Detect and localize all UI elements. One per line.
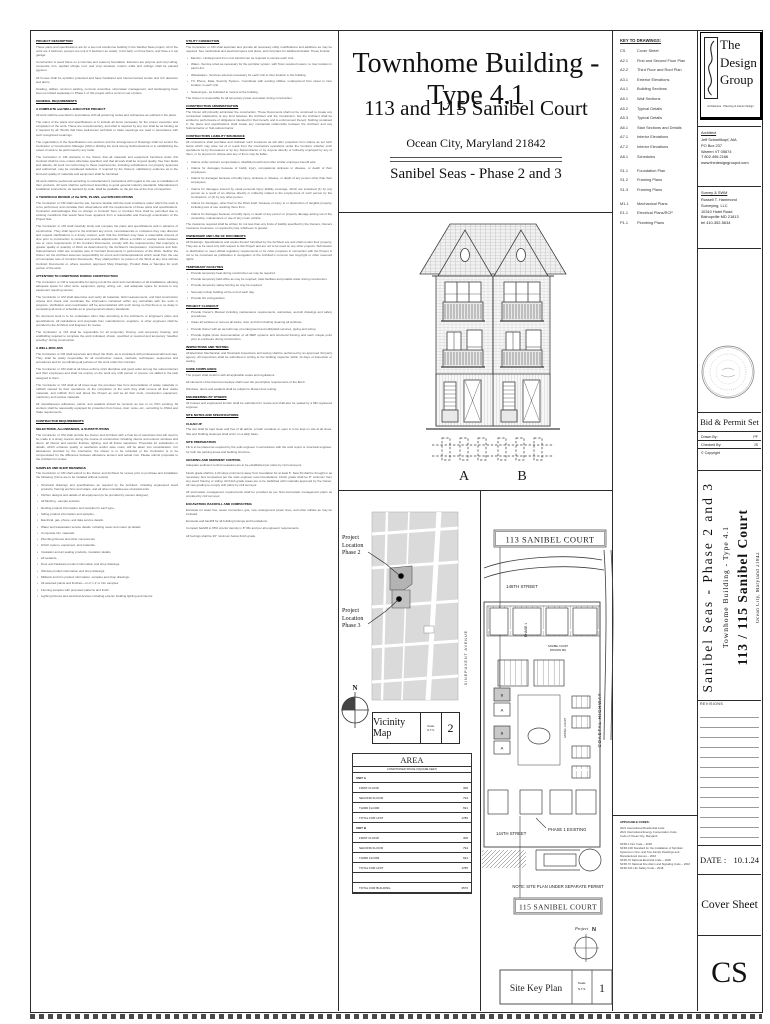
- spec-paragraph: The Contractor or CM shall at all times …: [36, 383, 178, 400]
- total-area: 3570: [461, 886, 468, 890]
- sinepuxent-avenue-label: SINEPUXENT AVENUE: [464, 630, 468, 685]
- spec-paragraph: Excavate and backfill for all building f…: [186, 519, 332, 523]
- vicinity-map-number: 2: [442, 713, 459, 743]
- spec-paragraph: The Contractor or CM shall provide the O…: [36, 433, 178, 462]
- spec-paragraph: All trusses and engineered lumber shall …: [186, 401, 332, 409]
- spec-bullet: Composite trim materials.: [36, 531, 178, 535]
- drawing-title: Mechanical Plans: [637, 201, 668, 206]
- strip-phase: Sanibel Seas - Phase 2 and 3: [700, 482, 716, 692]
- floor-area: 794: [463, 846, 468, 850]
- drawing-code: A5.3: [620, 115, 637, 120]
- design-group-name: TheDesignGroup: [720, 36, 757, 89]
- drawing-index-row: A3.1Exterior Elevations: [620, 77, 694, 82]
- section-heading: SITE PREPARATION: [186, 440, 332, 444]
- drawing-title: Wall Sections: [637, 96, 660, 101]
- survey-info: Survey & SWM Russell T. HammondSurveying…: [701, 190, 759, 226]
- drawing-code: CS: [620, 48, 637, 53]
- spec-paragraph: Construction is wood frame on a concrete…: [36, 60, 178, 72]
- sheet-code-box: CS: [698, 935, 761, 1011]
- spec-bullet: Provide temporary safety fencing as may …: [186, 283, 332, 287]
- unit-b-label: B: [517, 469, 526, 484]
- section-heading: CONSTRUCTION ADMINISTRATION: [186, 104, 332, 108]
- drawing-code: S1.1: [620, 168, 637, 173]
- unit-block-letter: A: [501, 746, 504, 751]
- sheet-name-box: Cover Sheet: [698, 875, 761, 936]
- drawing-code: S1.3: [620, 187, 637, 192]
- spec-bullet: Door and hardware product information an…: [36, 562, 178, 566]
- site-plan-note: NOTE: SITE PLAN UNDER SEPARATE PERMIT: [512, 884, 604, 889]
- spec-paragraph: Adequate sediment control measures are t…: [186, 463, 332, 467]
- strip-address: 113 / 115 Sanibel Court: [735, 509, 751, 666]
- label-146th-street: 146TH STREET: [506, 584, 538, 589]
- code-line: NFPA 13D Standard for the Installation o…: [620, 846, 694, 858]
- revision-line: [700, 808, 759, 818]
- spec-paragraph: The Contractor or CM warrants to the Own…: [36, 155, 178, 176]
- area-table-group: UNIT A: [353, 773, 471, 783]
- site-key-plan-scale-label: Scale:: [578, 981, 587, 985]
- spec-paragraph: The site shall be kept clean and free of…: [186, 427, 332, 435]
- floor-label: THIRD FLOOR: [356, 856, 379, 860]
- drawing-title: Schedules: [637, 154, 655, 159]
- site-key-plan-scale: N.T.S.: [578, 987, 586, 991]
- divider-specs-center: [338, 30, 339, 1011]
- section-heading: CODE COMPLIANCE: [186, 367, 332, 371]
- spec-bullet: Water and wastewater service details, in…: [36, 525, 178, 529]
- spec-bullet: Provide temporary field office as may be…: [186, 277, 332, 281]
- spec-column-2: UTILITY CONNECTIONThe Contractor or CM s…: [186, 35, 332, 541]
- rule: [698, 186, 761, 187]
- spec-bullet: Kitchen designs and details of all equip…: [36, 493, 178, 497]
- floor-area: 1785: [461, 866, 468, 870]
- label-phase1-existing: PHASE 1 EXISTING: [548, 827, 586, 832]
- spec-bullet: Claims for damages, other than to the Wo…: [186, 201, 332, 209]
- drawing-title: Typical Details: [637, 106, 662, 111]
- drawing-index-row: E1.1Electrical Plans/RCP: [620, 210, 694, 215]
- rule: [698, 248, 761, 249]
- section-heading: GENERAL REQUIREMENTS: [36, 99, 178, 103]
- spec-paragraph: Fill is to be placed as required by the …: [186, 445, 332, 453]
- rule: [698, 470, 761, 471]
- drawing-index-row: S1.2Framing Plans: [620, 177, 694, 182]
- drawing-code: A5.1: [620, 96, 637, 101]
- revision-line: [700, 818, 759, 828]
- area-table-group: UNIT B: [353, 823, 471, 833]
- vicinity-map-title: Vicinity Map: [373, 713, 421, 743]
- floor-label: SECOND FLOOR: [356, 846, 383, 850]
- revision-line: [700, 728, 759, 738]
- design-group-logo-icon: [704, 37, 718, 99]
- section-heading: PROJECT DESCRIPTION: [36, 39, 178, 43]
- vicinity-map-titlebar: Vicinity Map Scale:N.T.S. 2: [372, 712, 460, 744]
- rule-under-title: [338, 212, 612, 213]
- spec-bullet: Provide temporary heat during constructi…: [186, 271, 332, 275]
- spec-bullet: Clean all surfaces to remove all stains,…: [186, 320, 332, 324]
- drawing-code: A2.1: [620, 58, 637, 63]
- spec-bullet: All selected paints and finishes—on 2' x…: [36, 581, 178, 585]
- spec-paragraph: The Owner is responsible for all tempora…: [186, 96, 332, 100]
- spec-paragraph: All Drawings, Specifications and copies …: [186, 240, 332, 261]
- revision-line: [700, 828, 759, 838]
- spec-bullet: Claims for damages because of bodily inj…: [186, 176, 332, 184]
- design-group-tagline: Architecture · Planning & Interior Desig…: [703, 105, 758, 108]
- drawing-code: A7.1: [620, 134, 637, 139]
- date-value: 10.1.24: [734, 855, 760, 865]
- revision-line: [700, 718, 759, 728]
- section-heading: CLEAN UP: [186, 422, 332, 426]
- drawing-index-row: P1.1Plumbing Plans: [620, 220, 694, 225]
- project-phase: Sanibel Seas - Phase 2 and 3: [345, 166, 607, 183]
- area-table-row: FIRST FLOOR300: [353, 783, 471, 793]
- spec-bullet: Securely lockup building at the end of e…: [186, 290, 332, 294]
- section-heading: A COMPLETE and WELL-EXECUTED PROJECT: [36, 107, 178, 111]
- spec-paragraph: The project shall conform with all appli…: [186, 373, 332, 377]
- spec-paragraph: The Contractor or CM shall submit to the…: [36, 471, 178, 479]
- area-table: AREACONDITIONED SPACE (SQUARE FEET)UNIT …: [352, 753, 472, 894]
- spec-paragraph: The Owner will primarily administer the …: [186, 110, 332, 131]
- area-table-row: THIRD FLOOR691: [353, 803, 471, 813]
- area-table-title: AREA: [353, 754, 471, 767]
- revision-line: [700, 798, 759, 808]
- phase2-location-label: ProjectLocationPhase 2: [342, 535, 363, 558]
- site-key-plan: 113 SANIBEL COURT 146TH STREET PHASE 1 S…: [480, 490, 614, 1011]
- spec-paragraph: All footings shall be 30" minimum below …: [186, 534, 332, 538]
- section-heading: PROJECT CLOSEOUT: [186, 304, 332, 308]
- label-sanibel-court-small: SANIBEL COURT: [564, 718, 567, 738]
- title-double-rule: [390, 157, 562, 162]
- project-city: Ocean City, Maryland 21842: [345, 136, 607, 151]
- area-table-spacer: [353, 873, 471, 883]
- drawing-index-row: A5.2Typical Details: [620, 106, 694, 111]
- section-heading: SITE NOTES AND SPECIFICATIONS: [186, 413, 332, 417]
- spec-paragraph: Grading, utilities, common parking, comm…: [36, 87, 178, 95]
- section-heading: SAMPLES AND SHOP DRAWINGS: [36, 466, 178, 470]
- spec-paragraph: Finish grade shall be 1:20 slope (minimu…: [186, 471, 332, 488]
- area-table-row: TOTAL FOR UNIT1785: [353, 863, 471, 873]
- area-table-row: TOTAL FOR UNIT1785: [353, 813, 471, 823]
- spec-paragraph: The Contractor or CM shall at all times …: [36, 367, 178, 379]
- spec-paragraph: These plans and specifications are for a…: [36, 45, 178, 57]
- section-heading: CONTRACTOR REQUIREMENTS: [36, 419, 178, 423]
- revision-line: [700, 778, 759, 788]
- drawing-code: A8.1: [620, 154, 637, 159]
- spec-paragraph: All homes shall be sprinkler protected a…: [36, 76, 178, 84]
- spec-paragraph: All elements of the thermal envelope sha…: [186, 380, 332, 384]
- spec-bullet: Lighting fixtures and electrical devices…: [36, 594, 178, 598]
- spec-paragraph: All miscellaneous adhesives, paints, and…: [36, 402, 178, 414]
- spec-paragraph: All stormwater management requirements s…: [186, 490, 332, 498]
- label-144th-street: 144TH STREET: [496, 831, 527, 836]
- architect-info: Architect Jeff Schoellkopf, AIAPO Box 23…: [701, 130, 759, 166]
- checked-by-row: Checked By:JS: [698, 441, 761, 449]
- label-113-sanibel-court: 113 SANIBEL COURT: [505, 535, 594, 545]
- spec-bullet: Structural drawings and specifications a…: [36, 483, 178, 491]
- spec-paragraph: All work shall be performed according to…: [36, 179, 178, 191]
- spec-paragraph: The organization of the Specifications i…: [36, 140, 178, 152]
- drawing-code: A2.2: [620, 67, 637, 72]
- key-to-drawings-title: KEY TO DRAWINGS:: [620, 38, 694, 43]
- drawing-code: A6.1: [620, 125, 637, 130]
- spec-paragraph: The insurance required shall be written …: [186, 222, 332, 230]
- floor-label: TOTAL FOR UNIT: [356, 816, 383, 820]
- applicable-codes-title: APPLICABLE CODES:: [620, 820, 694, 824]
- section-heading: CONTRACTORS LIABILITY INSURANCE: [186, 134, 332, 138]
- label-sanibel-court-private-1: SANIBEL COURT: [548, 645, 568, 648]
- spec-column-1: PROJECT DESCRIPTIONThese plans and speci…: [36, 35, 178, 600]
- section-heading: ENGINEERING BY OTHERS: [186, 395, 332, 399]
- drawing-index-row: A5.3Typical Details: [620, 115, 694, 120]
- spec-bullet: Claims for damages insured by usual pers…: [186, 187, 332, 199]
- revision-line: [700, 768, 759, 778]
- strip-building-type: Townhome Building - Type 4.1: [721, 526, 730, 648]
- drawing-index-row: A7.1Interior Elevations: [620, 134, 694, 139]
- drawing-index-row: M1.1Mechanical Plans: [620, 201, 694, 206]
- drawing-index-row: A2.2Third Floor and Roof Plan: [620, 67, 694, 72]
- revisions-title: REVISIONS: [700, 702, 759, 706]
- spec-bullet: Provide Owner's Manual including mainten…: [186, 310, 332, 318]
- drawing-code: A4.1: [620, 86, 637, 91]
- section-heading: A WELL-RUN JOB: [36, 346, 178, 350]
- project-strip: Sanibel Seas - Phase 2 and 3 Townhome Bu…: [700, 476, 761, 698]
- spec-bullet: Provide Owner with an as-built map of un…: [186, 327, 332, 331]
- drawing-index-row: A8.1Schedules: [620, 154, 694, 159]
- unit-block-letter: B: [501, 693, 504, 698]
- spec-paragraph: The Contractor or CM shall carefully stu…: [36, 224, 178, 269]
- section-heading: INSPECTIONS AND TESTING: [186, 345, 332, 349]
- drawing-index-row: A5.1Wall Sections: [620, 96, 694, 101]
- building-elevation-drawing: A B: [398, 214, 588, 484]
- floor-area: 1785: [461, 816, 468, 820]
- drawing-title: Electrical Plans/RCP: [637, 210, 673, 215]
- section-heading: ATTENTION TO CONDITIONS DURING CONSTRUCT…: [36, 274, 178, 278]
- floor-area: 691: [463, 806, 468, 810]
- section-heading: A THOROUGH REVIEW of the SITE, PLANS, an…: [36, 195, 178, 199]
- cover-sheet-page: PROJECT DESCRIPTIONThese plans and speci…: [0, 0, 770, 1024]
- revision-line: [700, 738, 759, 748]
- revision-line: [700, 708, 759, 718]
- group-name: UNIT B: [356, 826, 366, 830]
- survey-line: tel 410-352-5634: [701, 220, 759, 226]
- drawing-title: Framing Plans: [637, 187, 662, 192]
- survey-heading: Survey & SWM: [701, 190, 759, 196]
- drawing-index-row: A4.1Building Sections: [620, 86, 694, 91]
- label-115-sanibel-court: 115 SANIBEL COURT: [519, 903, 597, 912]
- section-heading: OWNERSHIP AND USE OF DOCUMENTS: [186, 234, 332, 238]
- drawing-title: Cover Sheet: [637, 48, 659, 53]
- drawing-index-row: A2.1First and Second Floor Plan: [620, 58, 694, 63]
- floor-label: SECOND FLOOR: [356, 796, 383, 800]
- rule: [698, 126, 761, 127]
- section-heading: EXCAVATION, BACKFILL AND COMPACTING: [186, 502, 332, 506]
- drawing-code: E1.1: [620, 210, 637, 215]
- drawing-code: A7.2: [620, 144, 637, 149]
- drawing-title: Stair Sections and Details: [637, 125, 682, 130]
- floor-area: 300: [463, 786, 468, 790]
- issue-rows: Drawn By:PF Checked By:JS © Copyright: [698, 433, 761, 456]
- copyright-row: © Copyright: [698, 449, 761, 456]
- unit-block-letter: B: [501, 731, 504, 736]
- spec-bullet: Provide fire extinguishers.: [186, 296, 332, 300]
- spec-paragraph: The Contractor or CM shall be responsibl…: [36, 330, 178, 342]
- drawn-by-row: Drawn By:PF: [698, 433, 761, 441]
- phase3-location-label: ProjectLocationPhase 3: [342, 608, 363, 631]
- drawing-index-row: CSCover Sheet: [620, 48, 694, 53]
- spec-bullet: HVAC system, equipment, and materials.: [36, 543, 178, 547]
- spec-bullet: Claims under workers compensation, disab…: [186, 160, 332, 164]
- architect-heading: Architect: [701, 130, 759, 136]
- spec-bullet: All sealants.: [36, 556, 178, 560]
- drawing-code: S1.2: [620, 177, 637, 182]
- drawing-title: Framing Plans: [637, 177, 662, 182]
- rule-above-codes: [613, 815, 697, 816]
- spec-bullet: Claims for damages because of bodily inj…: [186, 212, 332, 220]
- unit-block-letter: A: [501, 708, 504, 713]
- spec-bullet: TV, Phone, Data, Security System– Coordi…: [186, 79, 332, 87]
- section-heading: GRADING AND SEDIMENT CONTROL: [186, 458, 332, 462]
- area-table-row: SECOND FLOOR794: [353, 793, 471, 803]
- issue-set-label: Bid & Permit Set: [698, 412, 761, 432]
- spec-paragraph: The Contractor or CM shall ascertain and…: [186, 45, 332, 53]
- site-key-plan-title: Site Key Plan: [510, 984, 562, 994]
- revision-line: [700, 748, 759, 758]
- floor-label: FIRST FLOOR: [356, 786, 379, 790]
- drawing-index-row: S1.3Framing Plans: [620, 187, 694, 192]
- strip-city: Ocean City, Maryland 21842: [756, 552, 761, 623]
- label-phase1: PHASE 1: [524, 623, 528, 637]
- drawing-title: Interior Elevations: [637, 144, 668, 149]
- site-key-plan-number: 1: [599, 981, 605, 995]
- spec-bullet: All flashing - sample sections.: [36, 499, 178, 503]
- label-sanibel-court-private-2: (PRIVATE RD): [550, 649, 566, 652]
- spec-paragraph: Windows, doors and sealants shall be sub…: [186, 387, 332, 391]
- spec-bullet: Water– Service sized as necessary for th…: [186, 62, 332, 70]
- spec-paragraph: Compact backfill to 95% proctor density …: [186, 526, 332, 530]
- drawing-code: A3.1: [620, 77, 637, 82]
- spec-paragraph: All contractors shall purchase and maint…: [186, 140, 332, 157]
- spec-bullet: Wastewater– Services sized as necessary …: [186, 73, 332, 77]
- drawing-title: Foundation Plan: [637, 168, 665, 173]
- drawing-code: P1.1: [620, 220, 637, 225]
- rule: [698, 700, 761, 701]
- spec-bullet: Roofing product information and samples …: [36, 506, 178, 510]
- floor-label: FIRST FLOOR: [356, 836, 379, 840]
- drawing-code: A5.2: [620, 106, 637, 111]
- label-coastal-highway: COASTAL HIGHWAY: [597, 693, 602, 748]
- code-line: NFPA 101 Life Safety Code – 2018: [620, 866, 694, 870]
- spec-paragraph: No structural work is to be undertaken o…: [36, 314, 178, 326]
- architect-seal-icon: [698, 332, 760, 412]
- drawing-title: Interior Elevations: [637, 134, 668, 139]
- spec-bullet: Insulation and air sealing products, ins…: [36, 550, 178, 554]
- drawing-code: M1.1: [620, 201, 637, 206]
- revisions-block: REVISIONS: [700, 702, 759, 838]
- north-arrow-icon: N: [338, 682, 372, 730]
- drawing-title: First and Second Floor Plan: [637, 58, 685, 63]
- drawing-title: Building Sections: [637, 86, 667, 91]
- area-table-total-row: TOTAL FOR BUILDING3570: [353, 883, 471, 893]
- spec-paragraph: The Contractor or CM shall determine and…: [36, 295, 178, 312]
- project-north-letter: N: [592, 927, 596, 933]
- area-table-row: SECOND FLOOR794: [353, 843, 471, 853]
- spec-paragraph: The intent of the plans and specificatio…: [36, 120, 178, 137]
- spec-bullet: Siding product information and samples.: [36, 512, 178, 516]
- spec-bullet: Flooring samples with proposed patterns …: [36, 588, 178, 592]
- design-group-logo-box: TheDesignGroup Architecture · Planning &…: [700, 32, 763, 120]
- floor-area: 691: [463, 856, 468, 860]
- date-label: DATE :: [700, 855, 726, 865]
- spec-bullet: Provide digital photo documentation of a…: [186, 333, 332, 341]
- drawing-index-row: A7.2Interior Elevations: [620, 144, 694, 149]
- spec-paragraph: The Contractor or CM shall visit the sit…: [36, 201, 178, 222]
- drawing-title: Typical Details: [637, 115, 662, 120]
- spec-bullet: Plumbing fixtures and other components.: [36, 537, 178, 541]
- floor-area: 300: [463, 836, 468, 840]
- spec-bullet: Electrical, gas, phone, and data service…: [36, 518, 178, 522]
- project-north-word: Project: [574, 926, 589, 931]
- revision-line: [700, 758, 759, 768]
- drawing-title: Third Floor and Roof Plan: [637, 67, 682, 72]
- floor-label: TOTAL FOR UNIT: [356, 866, 383, 870]
- spec-bullet: Claims for damages because of bodily inj…: [186, 166, 332, 174]
- svg-text:N: N: [352, 684, 357, 692]
- section-heading: TEMPORARY FACILITIES: [186, 265, 332, 269]
- key-to-drawings: KEY TO DRAWINGS: CSCover SheetA2.1First …: [620, 38, 694, 230]
- sheet-bottom-band: [30, 1014, 762, 1019]
- group-name: UNIT A: [356, 776, 366, 780]
- vicinity-map-scale: Scale:N.T.S.: [421, 713, 442, 743]
- drawing-index-row: A6.1Stair Sections and Details: [620, 125, 694, 130]
- drawing-title: Plumbing Plans: [637, 220, 664, 225]
- spec-paragraph: All work shall be executed in accordance…: [36, 113, 178, 117]
- total-label: TOTAL FOR BUILDING: [356, 886, 390, 890]
- date-box: DATE : 10.1.24: [698, 845, 761, 875]
- area-table-row: FIRST FLOOR300: [353, 833, 471, 843]
- spec-bullet: Electric– Underground from new transform…: [186, 56, 332, 60]
- spec-bullet: Millwork and trim product information, s…: [36, 575, 178, 579]
- applicable-codes: APPLICABLE CODES: 2021 International Res…: [620, 820, 694, 871]
- spec-paragraph: Excavate for water line, sewer connectio…: [186, 508, 332, 516]
- architect-line: www.thedesigngroupvt.com: [701, 160, 759, 166]
- floor-area: 794: [463, 796, 468, 800]
- section-heading: SELECTIONS, ALLOWANCES, & SUBSTITUTIONS: [36, 427, 178, 431]
- revision-line: [700, 788, 759, 798]
- unit-a-label: A: [459, 469, 470, 484]
- drawing-title: Exterior Elevations: [637, 77, 669, 82]
- spec-bullet: Window product information and shop draw…: [36, 569, 178, 573]
- area-table-row: THIRD FLOOR691: [353, 853, 471, 863]
- floor-label: THIRD FLOOR: [356, 806, 379, 810]
- spec-paragraph: All Electrical, Mechanical, and Structur…: [186, 351, 332, 363]
- section-heading: UTILITY CONNECTION: [186, 39, 332, 43]
- spec-paragraph: The Contractor or CM is responsible for …: [36, 280, 178, 292]
- spec-bullet: Natural gas– as indicated to meters at t…: [186, 90, 332, 94]
- drawing-index-row: S1.1Foundation Plan: [620, 168, 694, 173]
- project-address: 113 and 115 Sanibel Court: [345, 96, 607, 121]
- spec-paragraph: The Contractor or CM shall supervise and…: [36, 352, 178, 364]
